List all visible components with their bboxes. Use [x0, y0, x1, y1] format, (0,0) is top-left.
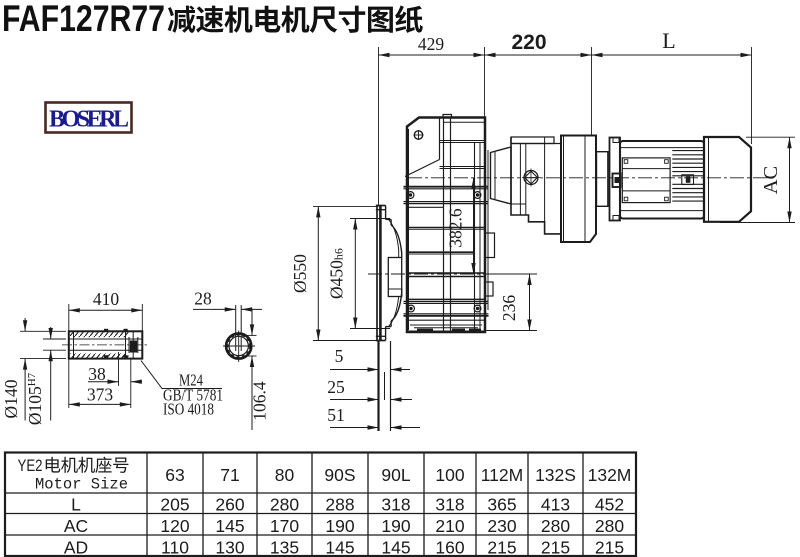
svg-text:110: 110 — [161, 538, 189, 557]
svg-text:51: 51 — [327, 405, 345, 425]
svg-text:132S: 132S — [535, 465, 576, 485]
svg-text:AC: AC — [760, 166, 782, 194]
svg-text:106.4: 106.4 — [250, 381, 270, 421]
svg-text:71: 71 — [220, 465, 239, 485]
svg-text:FAF127R77: FAF127R77 — [2, 0, 165, 39]
svg-text:280: 280 — [595, 516, 624, 536]
svg-text:190: 190 — [325, 516, 354, 536]
svg-text:280: 280 — [270, 495, 299, 515]
svg-text:373: 373 — [87, 385, 114, 405]
svg-text:210: 210 — [435, 516, 464, 536]
svg-text:215: 215 — [487, 538, 516, 557]
svg-text:Motor Size: Motor Size — [35, 476, 128, 494]
svg-text:318: 318 — [381, 495, 410, 515]
svg-text:452: 452 — [595, 495, 624, 515]
svg-text:63: 63 — [165, 465, 184, 485]
svg-text:145: 145 — [325, 538, 354, 557]
svg-text:135: 135 — [270, 538, 299, 557]
svg-text:38: 38 — [88, 364, 106, 384]
svg-text:318: 318 — [435, 495, 464, 515]
svg-text:25: 25 — [327, 377, 345, 397]
svg-text:365: 365 — [487, 495, 516, 515]
svg-text:112M: 112M — [481, 465, 523, 485]
svg-text:410: 410 — [93, 289, 120, 309]
svg-text:YE2: YE2 — [18, 456, 43, 475]
svg-text:230: 230 — [487, 516, 516, 536]
svg-text:Ø140: Ø140 — [1, 379, 21, 418]
svg-text:AC: AC — [64, 516, 88, 536]
svg-text:5: 5 — [335, 346, 344, 366]
svg-text:90L: 90L — [381, 465, 410, 485]
svg-text:215: 215 — [595, 538, 624, 557]
svg-text:L: L — [662, 28, 675, 53]
svg-text:170: 170 — [270, 516, 299, 536]
svg-text:100: 100 — [435, 465, 464, 485]
svg-text:260: 260 — [215, 495, 244, 515]
svg-text:Ø450h6: Ø450h6 — [327, 248, 347, 299]
svg-text:L: L — [71, 495, 81, 515]
svg-text:28: 28 — [194, 289, 212, 309]
svg-text:429: 429 — [418, 34, 445, 54]
svg-text:90S: 90S — [324, 465, 355, 485]
svg-text:413: 413 — [541, 495, 570, 515]
svg-text:132M: 132M — [588, 465, 632, 485]
svg-text:BOSERL: BOSERL — [49, 107, 129, 133]
svg-text:120: 120 — [160, 516, 189, 536]
svg-text:190: 190 — [381, 516, 410, 536]
svg-text:215: 215 — [541, 538, 570, 557]
svg-text:ISO 4018: ISO 4018 — [163, 400, 214, 419]
svg-text:Ø550: Ø550 — [290, 254, 310, 293]
svg-text:205: 205 — [160, 495, 189, 515]
svg-text:145: 145 — [381, 538, 410, 557]
svg-text:280: 280 — [541, 516, 570, 536]
svg-text:382.6: 382.6 — [446, 208, 466, 248]
svg-text:80: 80 — [275, 465, 295, 485]
svg-text:236: 236 — [499, 295, 519, 322]
svg-text:130: 130 — [215, 538, 244, 557]
svg-text:288: 288 — [325, 495, 354, 515]
svg-text:220: 220 — [511, 31, 546, 54]
svg-text:Ø105H7: Ø105H7 — [25, 372, 45, 425]
svg-text:145: 145 — [215, 516, 244, 536]
svg-text:160: 160 — [435, 538, 464, 557]
svg-text:AD: AD — [64, 538, 88, 557]
